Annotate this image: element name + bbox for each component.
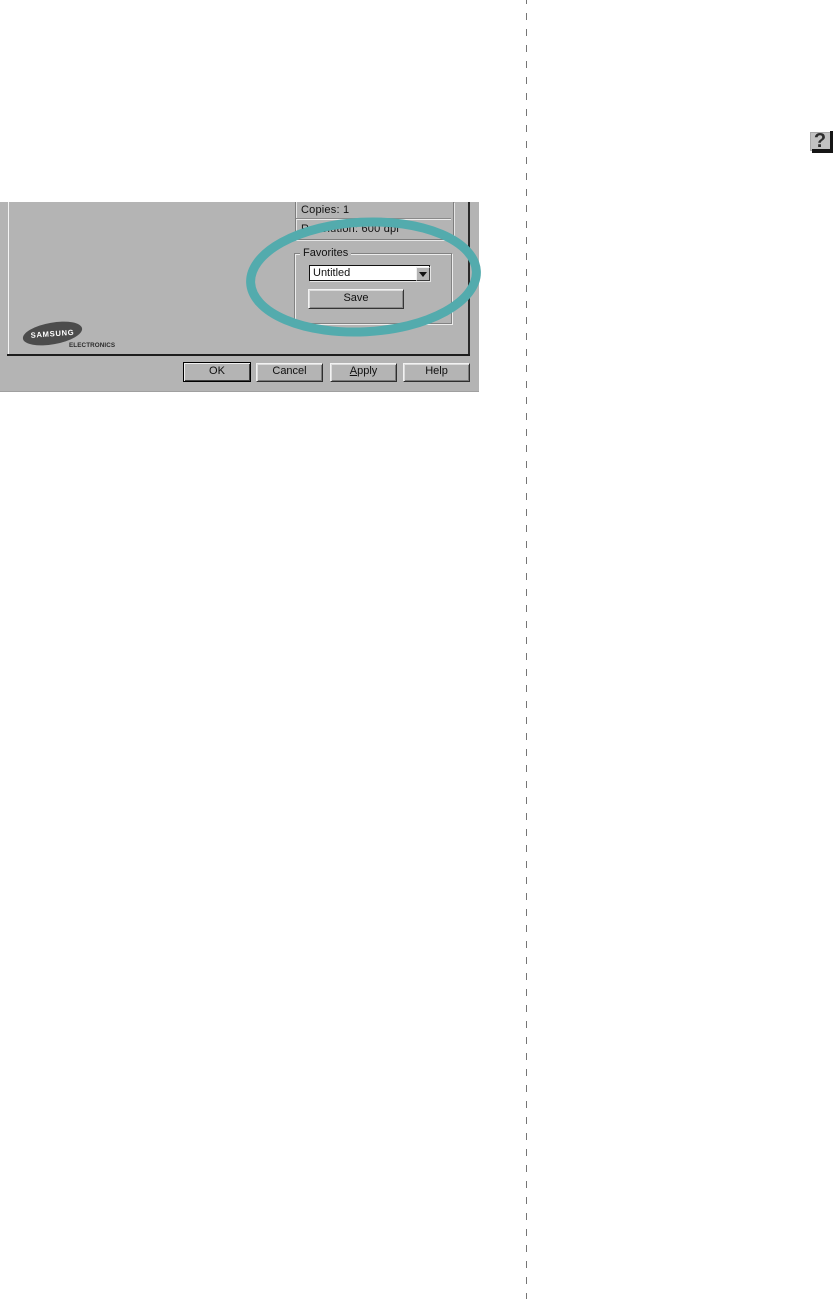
svg-text:ELECTRONICS: ELECTRONICS (69, 342, 115, 349)
